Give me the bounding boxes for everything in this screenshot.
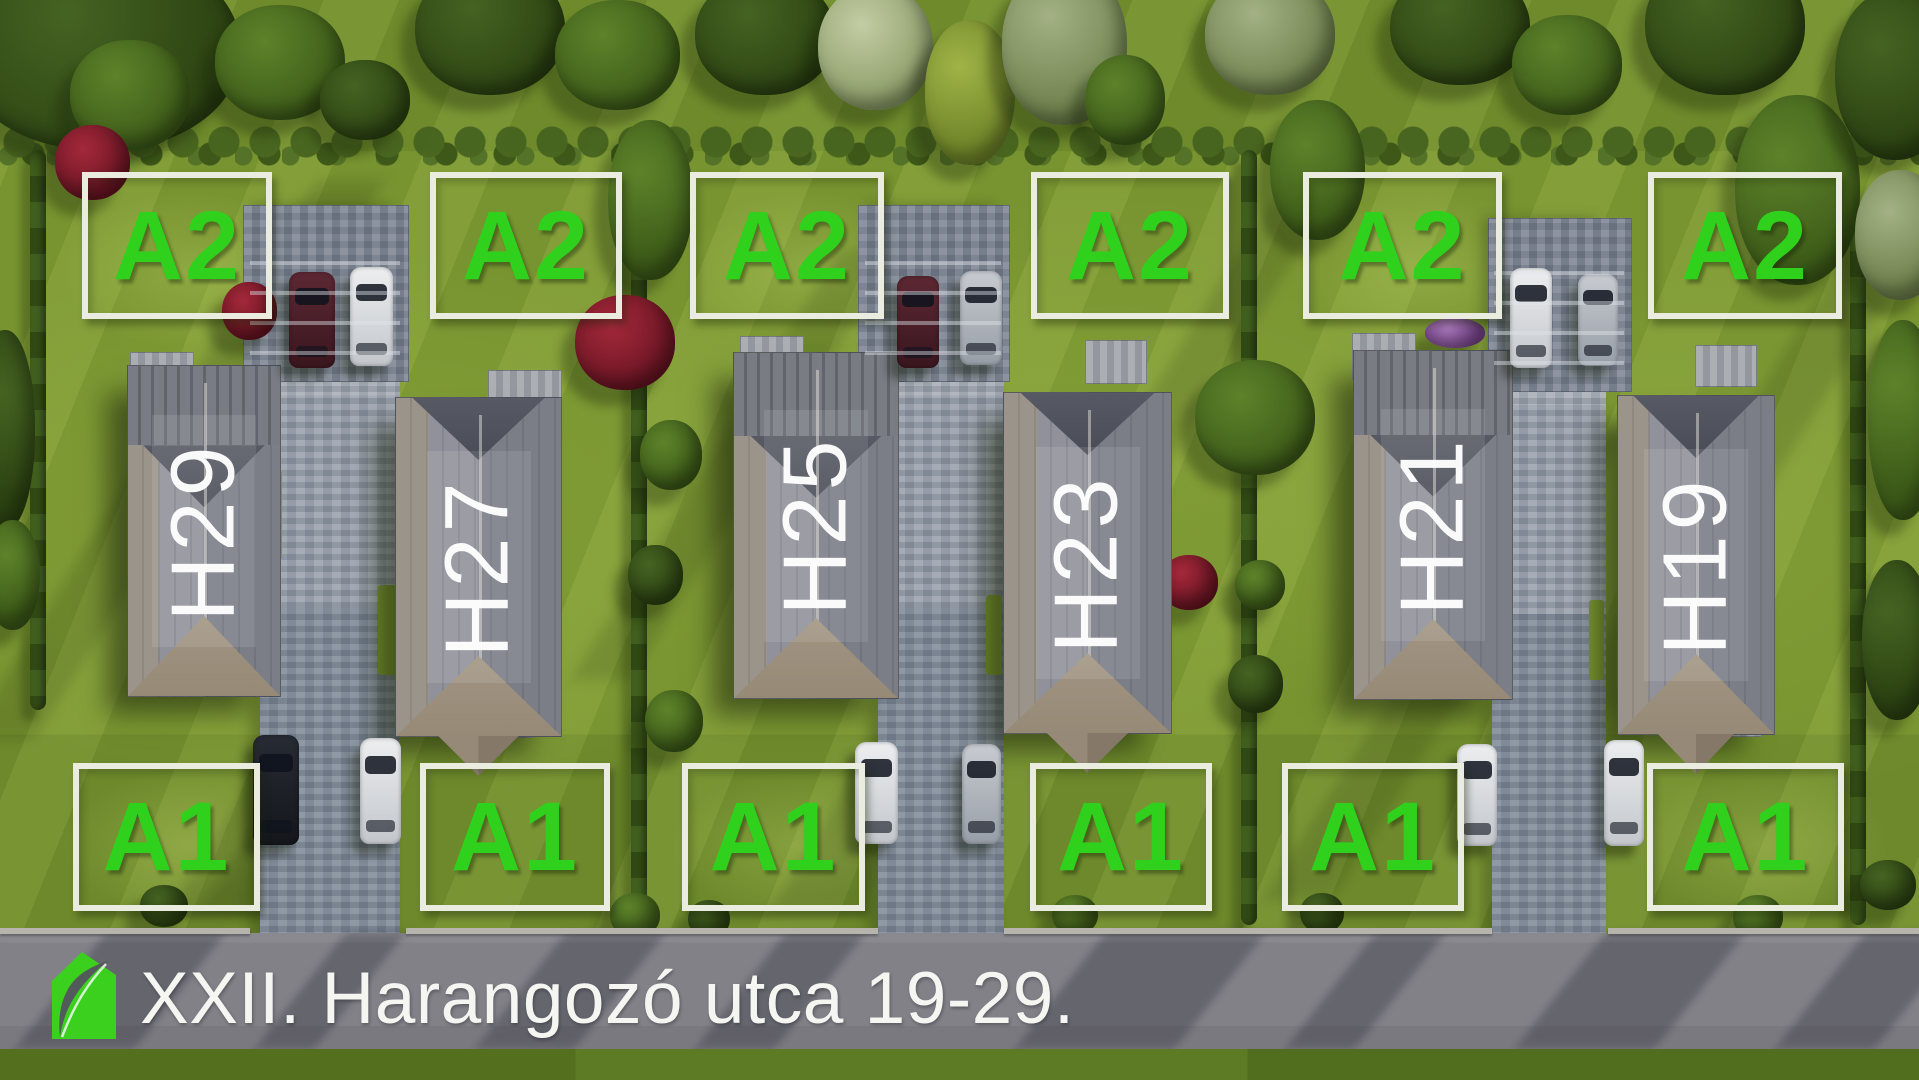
plot-box-a1: A1 — [420, 763, 610, 911]
house-label: H21 — [1382, 435, 1485, 615]
house-label: H23 — [1036, 473, 1139, 653]
hedge — [1850, 225, 1866, 925]
plot-label: A2 — [1681, 190, 1809, 302]
car — [360, 738, 401, 844]
plot-box-a1: A1 — [1647, 763, 1844, 911]
curb — [406, 928, 878, 934]
lawn-inset — [378, 585, 396, 675]
house-h25: H25 — [733, 352, 899, 699]
plot-box-a2: A2 — [1648, 172, 1842, 319]
plot-box-a1: A1 — [73, 763, 260, 911]
flowering-tree — [818, 0, 933, 110]
lawn-inset — [986, 595, 1002, 675]
house-h29: H29 — [127, 365, 281, 697]
grass-strip — [0, 1049, 1919, 1080]
bush — [1228, 655, 1283, 713]
terrace — [1695, 345, 1757, 387]
plot-label: A2 — [462, 190, 590, 302]
site-plan-render: H29 H27 H25 H23 H21 H19 — [0, 0, 1919, 1080]
tree — [1205, 0, 1335, 95]
tree — [695, 0, 835, 95]
bush — [640, 420, 702, 490]
pergola-beams — [250, 235, 400, 375]
bush — [1860, 860, 1916, 910]
house-label: H29 — [153, 441, 256, 621]
house-h21: H21 — [1353, 350, 1513, 700]
house-label: H25 — [765, 435, 868, 615]
plot-label: A2 — [1066, 190, 1194, 302]
plot-label: A1 — [1057, 781, 1185, 893]
house-h23: H23 — [1003, 392, 1172, 734]
road-shadow — [1285, 933, 1446, 1049]
hedge-cluster — [1862, 560, 1919, 720]
hedge — [1241, 150, 1257, 925]
plot-label: A1 — [1309, 781, 1437, 893]
green-house-leaf-icon — [44, 947, 124, 1042]
plot-label: A2 — [113, 190, 241, 302]
tree — [1195, 360, 1315, 475]
plot-label: A1 — [710, 781, 838, 893]
plot-box-a1: A1 — [1282, 763, 1464, 911]
plot-label: A2 — [1339, 190, 1467, 302]
bush — [628, 545, 683, 605]
tree — [555, 0, 680, 110]
pergola-beams — [1494, 245, 1624, 380]
tree — [1645, 0, 1805, 95]
plot-box-a2: A2 — [1303, 172, 1502, 319]
plot-label: A2 — [723, 190, 851, 302]
curb — [1608, 928, 1919, 934]
lawn-inset — [1589, 600, 1604, 680]
house-label: H27 — [427, 477, 530, 657]
tree — [320, 60, 410, 140]
plot-box-a2: A2 — [1031, 172, 1229, 319]
pergola-beams — [865, 235, 1001, 375]
curb — [1004, 928, 1492, 934]
house-label: H19 — [1645, 475, 1748, 655]
plot-box-a1: A1 — [1030, 763, 1212, 911]
plot-box-a1: A1 — [682, 763, 865, 911]
tree — [415, 0, 565, 95]
plot-box-a2: A2 — [82, 172, 272, 319]
hedge-cluster — [1868, 320, 1919, 520]
bush — [645, 690, 703, 752]
terrace — [1085, 340, 1147, 384]
tree — [1085, 55, 1165, 145]
plot-box-a2: A2 — [690, 172, 884, 319]
car — [1604, 740, 1644, 846]
plot-label: A1 — [1682, 781, 1810, 893]
road-shadow — [1515, 933, 1746, 1049]
plot-label: A1 — [103, 781, 231, 893]
plot-label: A1 — [451, 781, 579, 893]
tree — [1390, 0, 1530, 85]
bush — [1235, 560, 1285, 610]
developer-logo — [44, 947, 124, 1043]
house-h27: H27 — [395, 397, 562, 737]
road-shadow — [1775, 933, 1919, 1049]
street-address-title: XXII. Harangozó utca 19-29. — [140, 962, 1075, 1035]
flower-bed — [1425, 318, 1485, 348]
car — [962, 744, 1001, 844]
house-h19: H19 — [1617, 395, 1775, 735]
tree — [1512, 15, 1622, 115]
curb — [0, 928, 250, 934]
plot-box-a2: A2 — [430, 172, 622, 319]
